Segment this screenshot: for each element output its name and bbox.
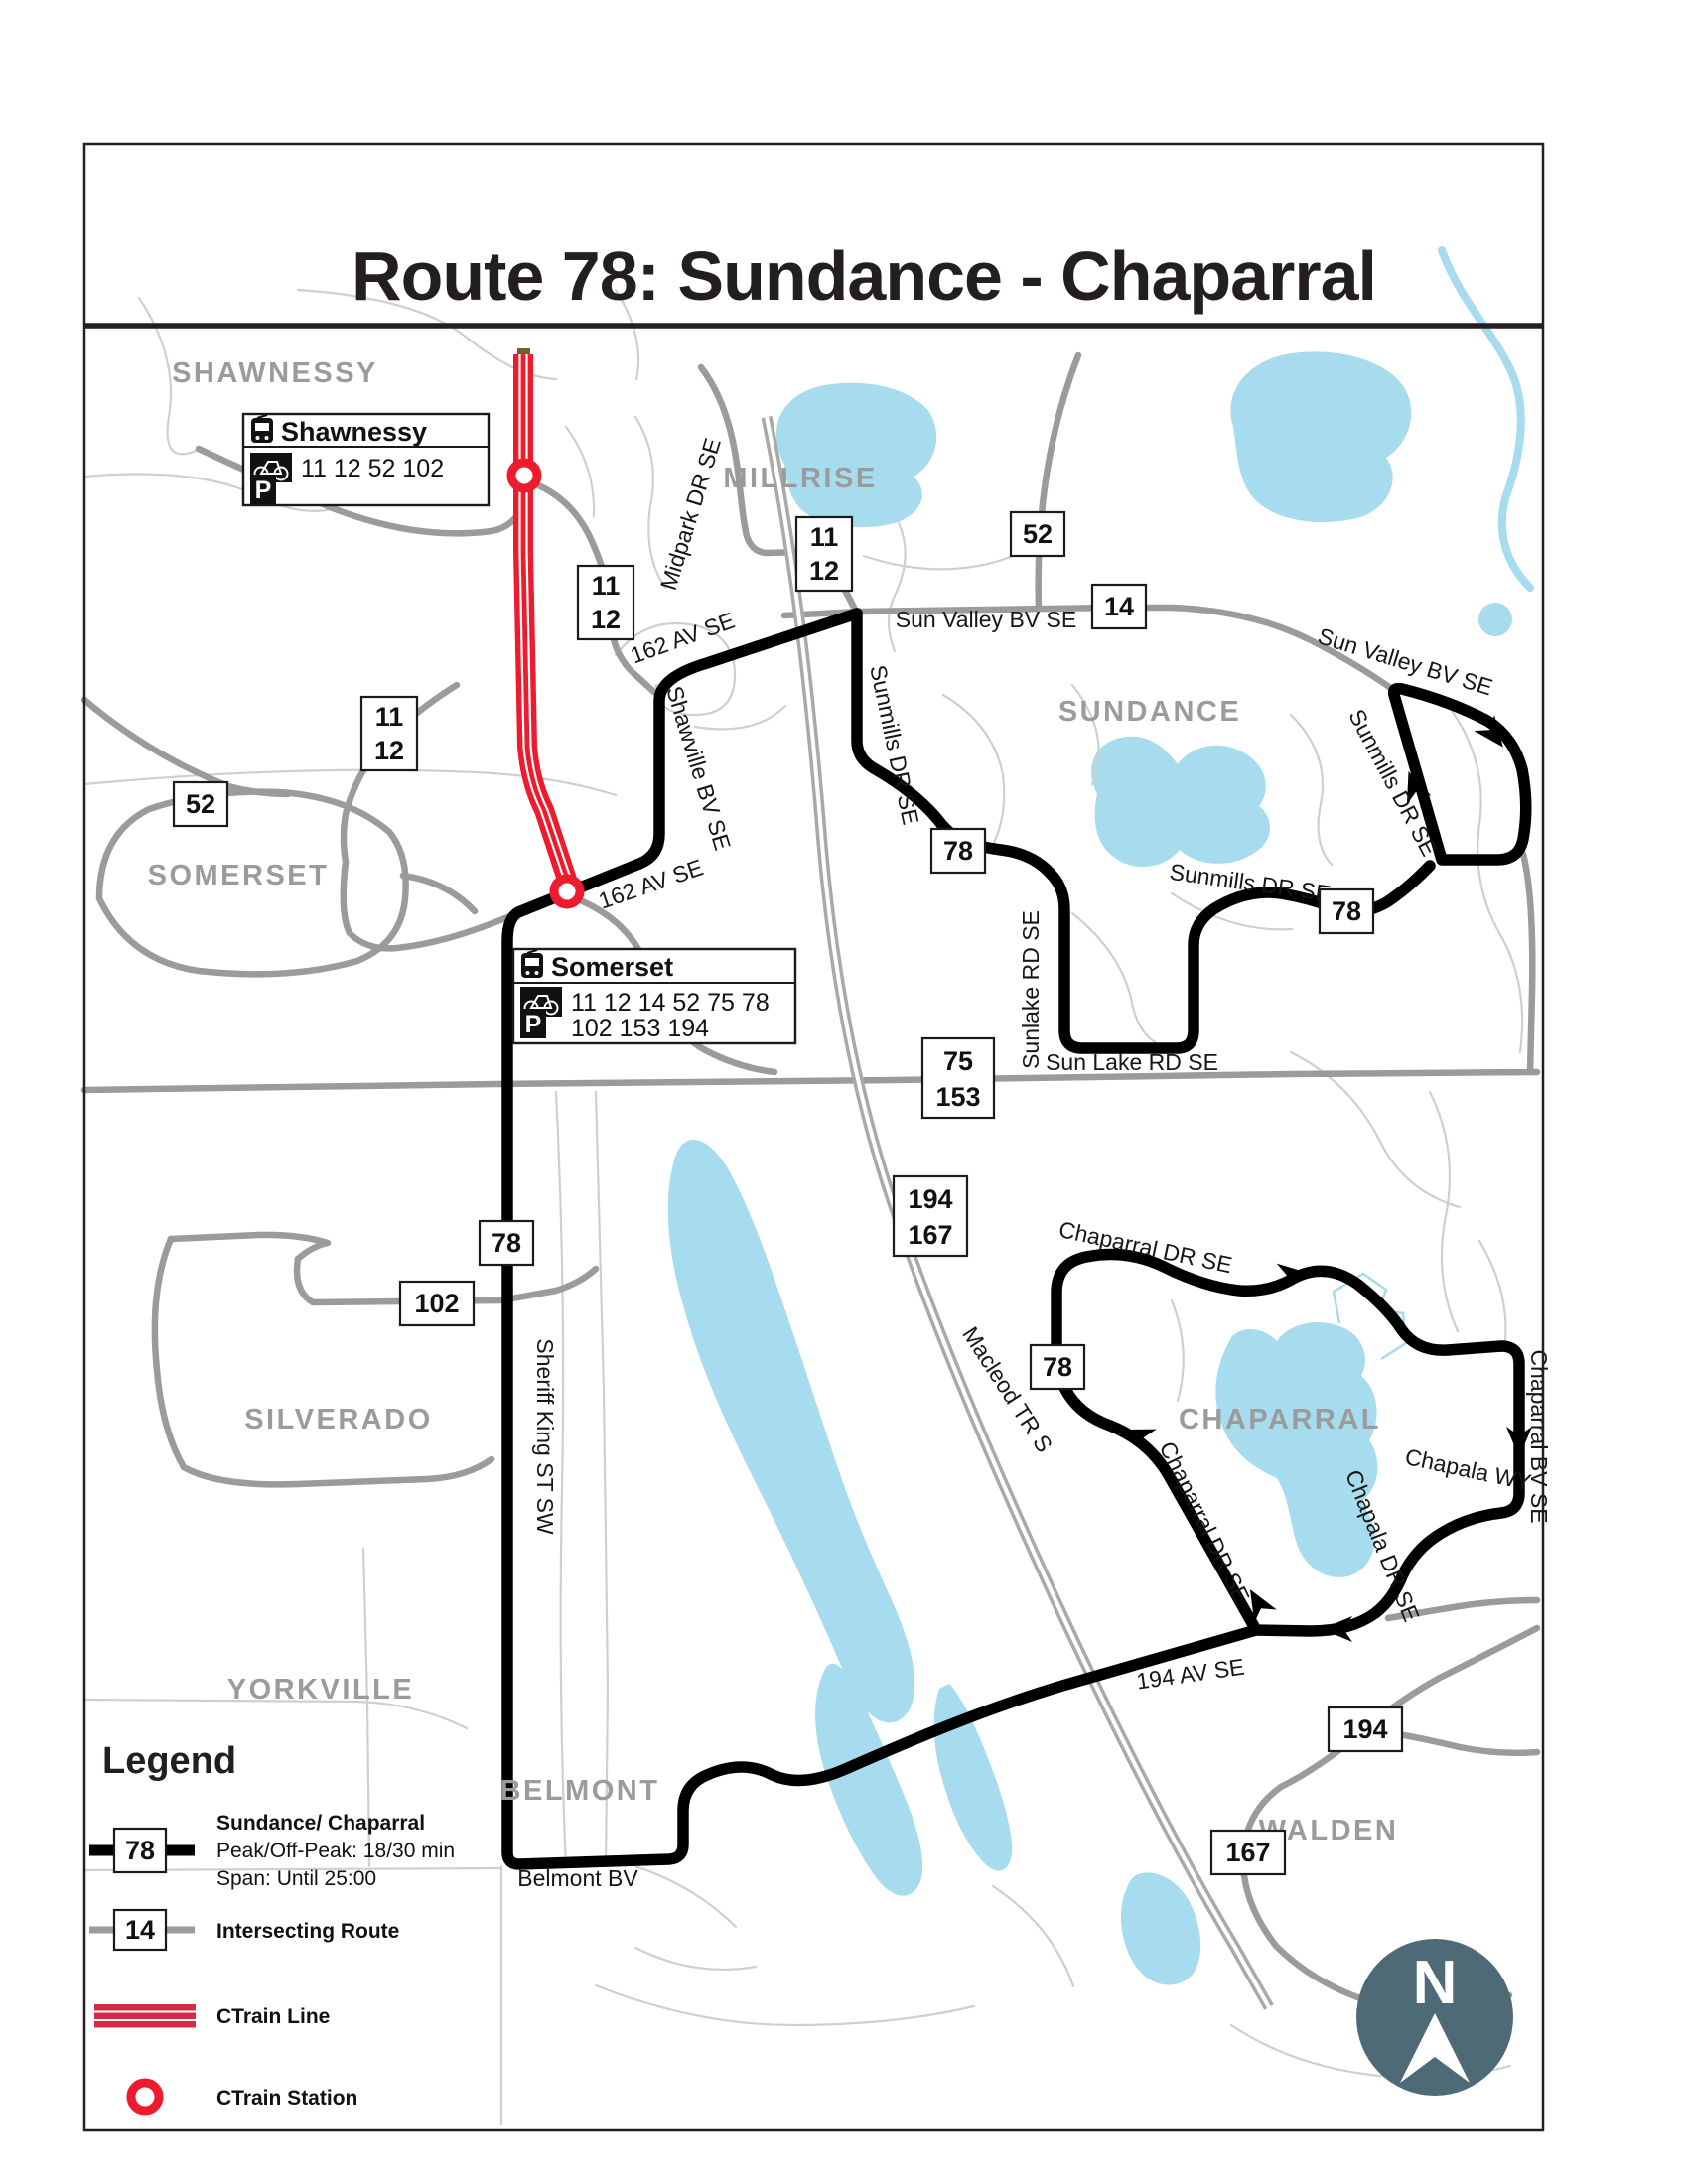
svg-text:153: 153 xyxy=(935,1082,980,1112)
route-badge: 14 xyxy=(1092,585,1146,628)
street-label: Sunlake RD SE xyxy=(1018,910,1044,1069)
page-title: Route 78: Sundance - Chaparral xyxy=(352,237,1376,315)
route-badge: 1112 xyxy=(796,517,852,591)
route-badge: 52 xyxy=(1011,512,1064,556)
street-label: Chaparral DR SE xyxy=(1155,1437,1255,1607)
compass: N xyxy=(1356,1939,1513,2096)
legend-route-badge: 78 xyxy=(125,1836,155,1865)
svg-text:P: P xyxy=(255,477,272,504)
legend-ctrain-station-label: CTrain Station xyxy=(216,2087,357,2110)
svg-text:78: 78 xyxy=(492,1228,521,1258)
station-callout-title: Shawnessy xyxy=(281,417,427,447)
svg-text:11: 11 xyxy=(810,522,839,552)
park-route-list: 102 153 194 xyxy=(571,1015,709,1042)
svg-text:167: 167 xyxy=(908,1220,952,1250)
svg-text:78: 78 xyxy=(943,836,973,866)
svg-text:11: 11 xyxy=(375,702,404,732)
neighborhood-labels: SHAWNESSY MILLRISE SUNDANCE SOMERSET SIL… xyxy=(148,357,1399,1846)
neighborhood-label: MILLRISE xyxy=(723,463,877,494)
legend-ctrain-line-label: CTrain Line xyxy=(216,2005,330,2028)
legend-ctrain-station-item: CTrain Station xyxy=(131,2083,357,2111)
neighborhood-label: BELMONT xyxy=(500,1775,660,1807)
svg-text:75: 75 xyxy=(943,1046,973,1076)
svg-text:11: 11 xyxy=(592,571,621,601)
route-badge: 1112 xyxy=(578,566,633,639)
legend-title: Legend xyxy=(102,1740,236,1782)
neighborhood-label: SOMERSET xyxy=(148,860,330,891)
train-icon xyxy=(521,950,543,978)
svg-text:P: P xyxy=(525,1011,542,1038)
legend-intersecting-item: 14 Intersecting Route xyxy=(89,1910,399,1950)
svg-text:12: 12 xyxy=(591,605,621,634)
street-label: Shawville BV SE xyxy=(661,683,736,853)
road-sun-lake xyxy=(84,1072,1537,1090)
topright-creek xyxy=(1442,250,1530,588)
route-badge: 194 xyxy=(1329,1707,1402,1751)
road-52 xyxy=(1039,355,1078,608)
route-badge: 1112 xyxy=(361,697,417,770)
intersecting-routes xyxy=(84,355,1537,2011)
route-badge: 78 xyxy=(1031,1345,1084,1389)
street-label: Sun Valley BV SE xyxy=(896,607,1076,632)
route-map: SHAWNESSY MILLRISE SUNDANCE SOMERSET SIL… xyxy=(0,0,1688,2184)
legend-route-span: Span: Until 25:00 xyxy=(216,1867,376,1890)
svg-text:14: 14 xyxy=(1104,592,1134,621)
neighborhood-label: SUNDANCE xyxy=(1058,696,1241,728)
sundance-lake xyxy=(1091,737,1270,867)
road-somerset-link xyxy=(403,876,475,911)
legend-route-name: Sundance/ Chaparral xyxy=(216,1812,425,1835)
shawnessy-callout: Shawnessy 11 12 52 102 P xyxy=(243,414,489,505)
millrise-lake xyxy=(776,383,936,527)
street-label: Chaparral DR SE xyxy=(1056,1216,1234,1278)
street-label: Sunmills DR SE xyxy=(865,663,923,827)
walden-pond xyxy=(1121,1872,1200,1984)
train-icon xyxy=(251,415,273,443)
svg-text:78: 78 xyxy=(1332,896,1361,926)
street-label: Midpark DR SE xyxy=(655,435,726,593)
svg-text:52: 52 xyxy=(186,789,215,819)
road-sundance-south-stub xyxy=(1523,854,1532,1072)
road-162-west-gray xyxy=(344,862,512,948)
parking-icon: P xyxy=(250,475,276,504)
neighborhood-label: SILVERADO xyxy=(244,1404,433,1435)
legend: Legend 78 Sundance/ Chaparral Peak/Off-P… xyxy=(89,1740,455,2111)
chaparral-lake xyxy=(1215,1322,1377,1577)
neighborhood-label: YORKVILLE xyxy=(227,1674,414,1706)
svg-text:194: 194 xyxy=(1342,1714,1387,1744)
svg-text:194: 194 xyxy=(908,1184,952,1214)
neighborhood-label: SHAWNESSY xyxy=(172,357,378,389)
svg-text:78: 78 xyxy=(1043,1352,1072,1382)
ctrain-line xyxy=(517,348,571,880)
street-label: Sun Lake RD SE xyxy=(1046,1049,1218,1075)
route-badge: 167 xyxy=(1211,1831,1285,1874)
legend-route-item: 78 Sundance/ Chaparral Peak/Off-Peak: 18… xyxy=(89,1812,455,1890)
ctrain-line-end-tick xyxy=(517,348,530,355)
route-badge: 78 xyxy=(480,1221,533,1265)
route-badge: 75153 xyxy=(922,1038,994,1118)
road-silverado-top xyxy=(171,1235,328,1259)
route-badge: 78 xyxy=(931,829,985,873)
bike-route-list: 11 12 14 52 75 78 xyxy=(571,989,770,1017)
svg-text:102: 102 xyxy=(414,1289,459,1318)
route-badge: 194167 xyxy=(894,1176,967,1256)
shawnessy-station-marker xyxy=(511,463,537,488)
compass-north-label: N xyxy=(1413,1949,1458,2017)
bike-route-list: 11 12 52 102 xyxy=(301,455,444,482)
parking-icon: P xyxy=(520,1009,546,1038)
street-labels: 162 AV SE 162 AV SE Shawville BV SE Midp… xyxy=(517,435,1552,1891)
street-label: Sunmills DR SE xyxy=(1343,705,1443,861)
svg-text:12: 12 xyxy=(374,736,404,765)
route-badge: 78 xyxy=(1320,889,1373,933)
road-silverado-loop xyxy=(155,1239,492,1484)
route-78 xyxy=(507,614,1532,1864)
road-left-edge xyxy=(84,700,288,794)
station-callout-title: Somerset xyxy=(551,952,673,982)
somerset-callout: Somerset 11 12 14 52 75 78 P 102 153 194 xyxy=(513,949,795,1043)
fishcreek-lake-main xyxy=(668,1140,915,1723)
legend-route-peak: Peak/Off-Peak: 18/30 min xyxy=(216,1840,455,1862)
small-pond xyxy=(1478,603,1512,636)
street-label: Chaparral BV SE xyxy=(1526,1349,1552,1523)
route-badge: 102 xyxy=(400,1282,474,1325)
legend-intersecting-label: Intersecting Route xyxy=(216,1920,399,1943)
legend-intersecting-badge: 14 xyxy=(125,1915,155,1945)
svg-text:167: 167 xyxy=(1225,1838,1270,1867)
street-label: Belmont BV xyxy=(517,1865,638,1891)
street-label: Sheriff King ST SW xyxy=(532,1338,558,1535)
legend-ctrain-line-item: CTrain Line xyxy=(94,2004,330,2028)
topright-pond xyxy=(1230,351,1411,522)
svg-text:12: 12 xyxy=(809,556,839,586)
svg-text:52: 52 xyxy=(1023,519,1053,549)
route-badge: 52 xyxy=(174,782,227,826)
neighborhood-label: CHAPARRAL xyxy=(1179,1404,1381,1435)
somerset-station-marker xyxy=(554,879,580,904)
